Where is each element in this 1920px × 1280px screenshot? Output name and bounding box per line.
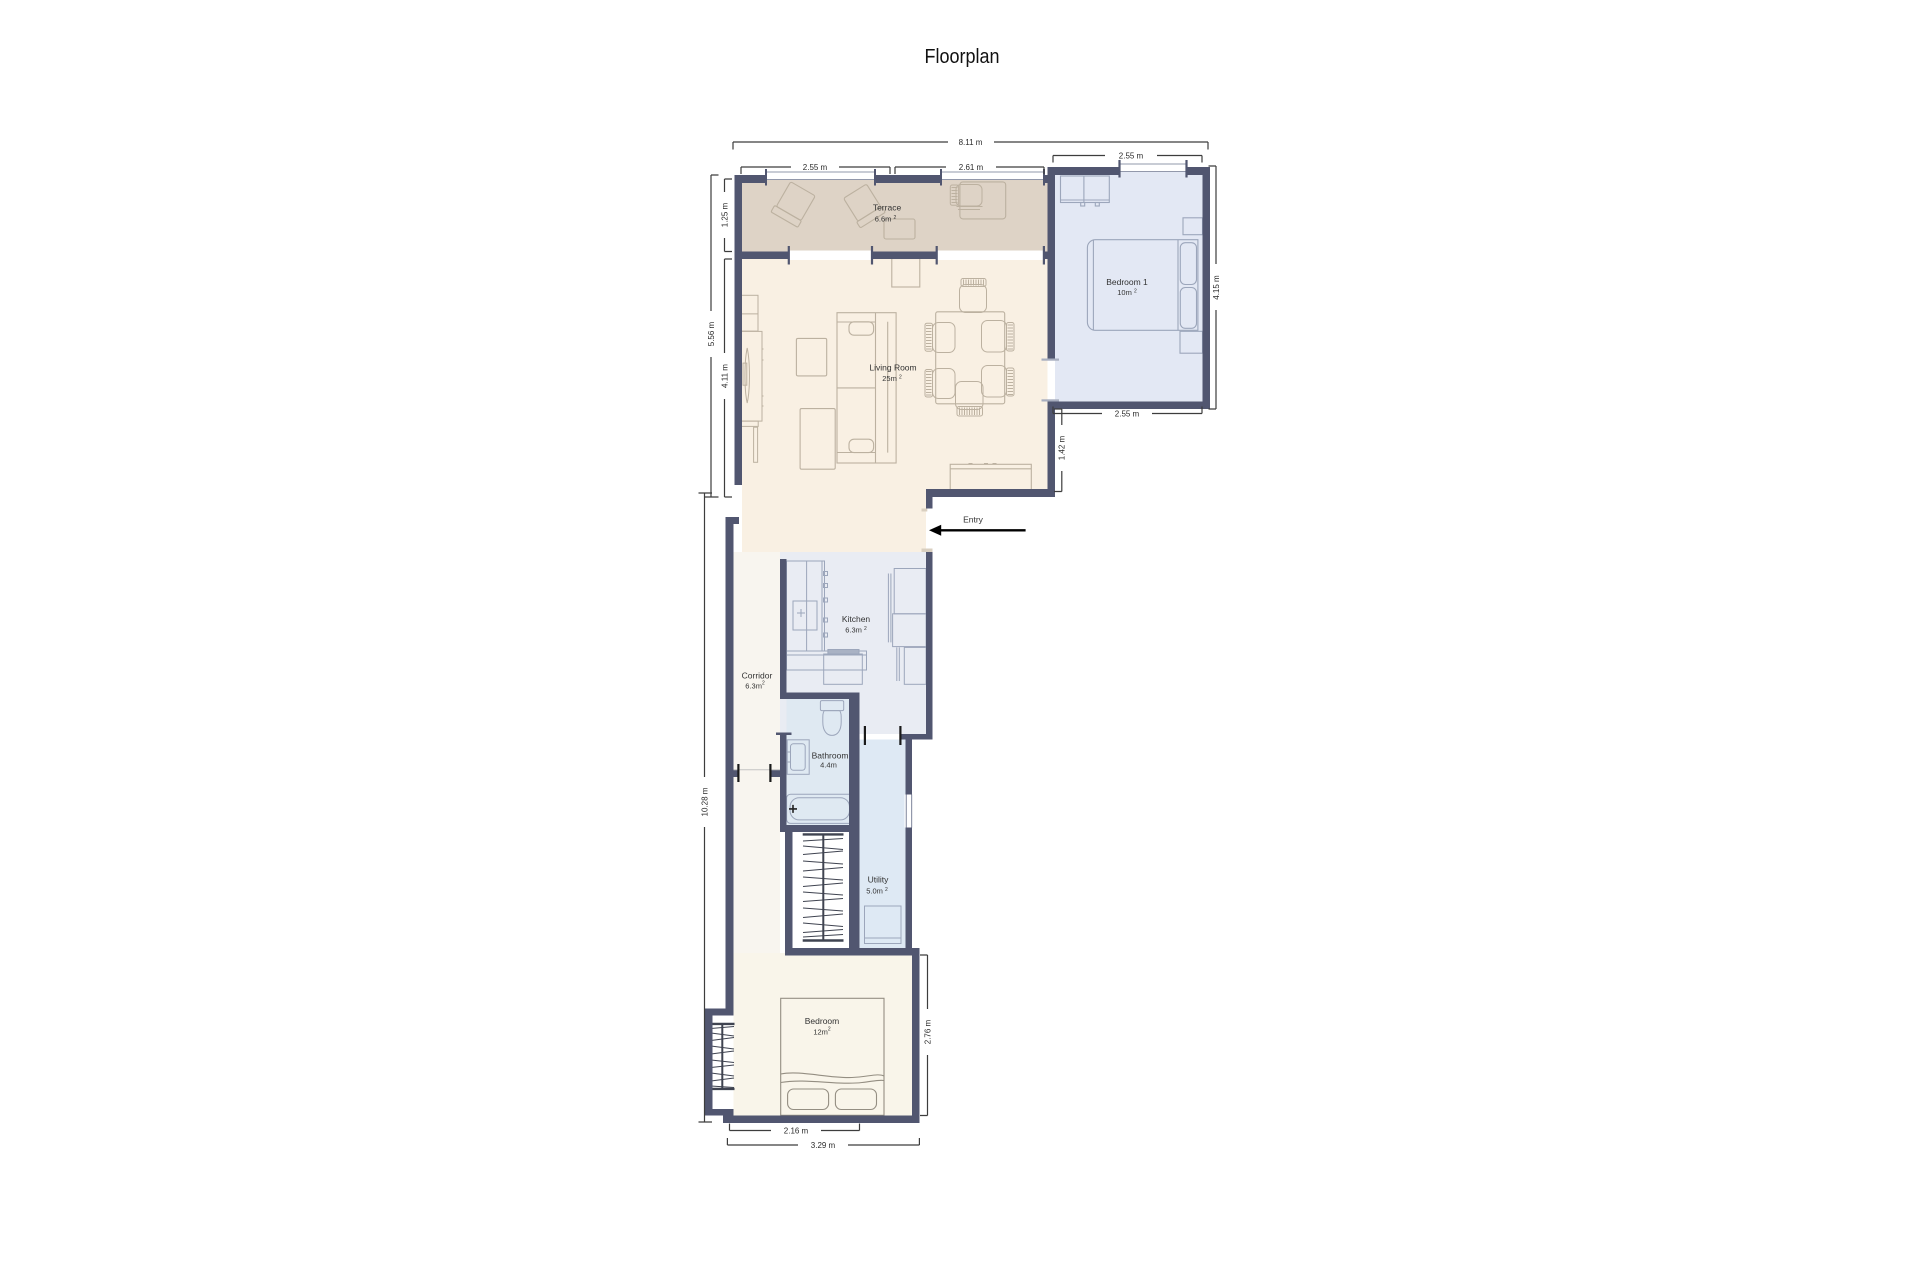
svg-text:4.15 m: 4.15 m (1212, 275, 1221, 300)
svg-text:2.76 m: 2.76 m (923, 1019, 932, 1044)
svg-text:2.55 m: 2.55 m (803, 163, 828, 172)
svg-text:2.61 m: 2.61 m (959, 163, 984, 172)
svg-text:4.11 m: 4.11 m (720, 364, 729, 388)
svg-text:2.55 m: 2.55 m (1115, 410, 1140, 419)
svg-text:10.28 m: 10.28 m (700, 787, 709, 816)
svg-text:Bathroom: Bathroom (812, 751, 849, 761)
svg-text:1.42 m: 1.42 m (1058, 435, 1067, 460)
svg-text:2.16 m: 2.16 m (784, 1127, 809, 1136)
svg-text:5.0m 2: 5.0m 2 (866, 887, 888, 896)
svg-text:Kitchen: Kitchen (842, 614, 871, 624)
svg-text:6.6m 2: 6.6m 2 (875, 215, 897, 224)
svg-text:Corridor: Corridor (742, 671, 773, 681)
svg-text:6.3m 2: 6.3m 2 (845, 626, 867, 635)
svg-text:Terrace: Terrace (873, 203, 902, 213)
svg-text:8.11 m: 8.11 m (959, 138, 983, 147)
svg-text:Living Room: Living Room (869, 363, 916, 373)
svg-text:Bedroom 1: Bedroom 1 (1106, 277, 1148, 287)
svg-text:Bedroom: Bedroom (805, 1016, 840, 1026)
svg-text:2.55 m: 2.55 m (1119, 152, 1144, 161)
svg-text:3.29 m: 3.29 m (811, 1141, 836, 1150)
svg-text:5.56 m: 5.56 m (707, 321, 716, 346)
svg-text:1.25 m: 1.25 m (720, 202, 729, 227)
svg-text:Utility: Utility (868, 875, 890, 885)
svg-text:Entry: Entry (963, 515, 984, 525)
svg-text:4.4m: 4.4m (820, 761, 837, 770)
svg-text:Floorplan: Floorplan (925, 45, 1000, 68)
